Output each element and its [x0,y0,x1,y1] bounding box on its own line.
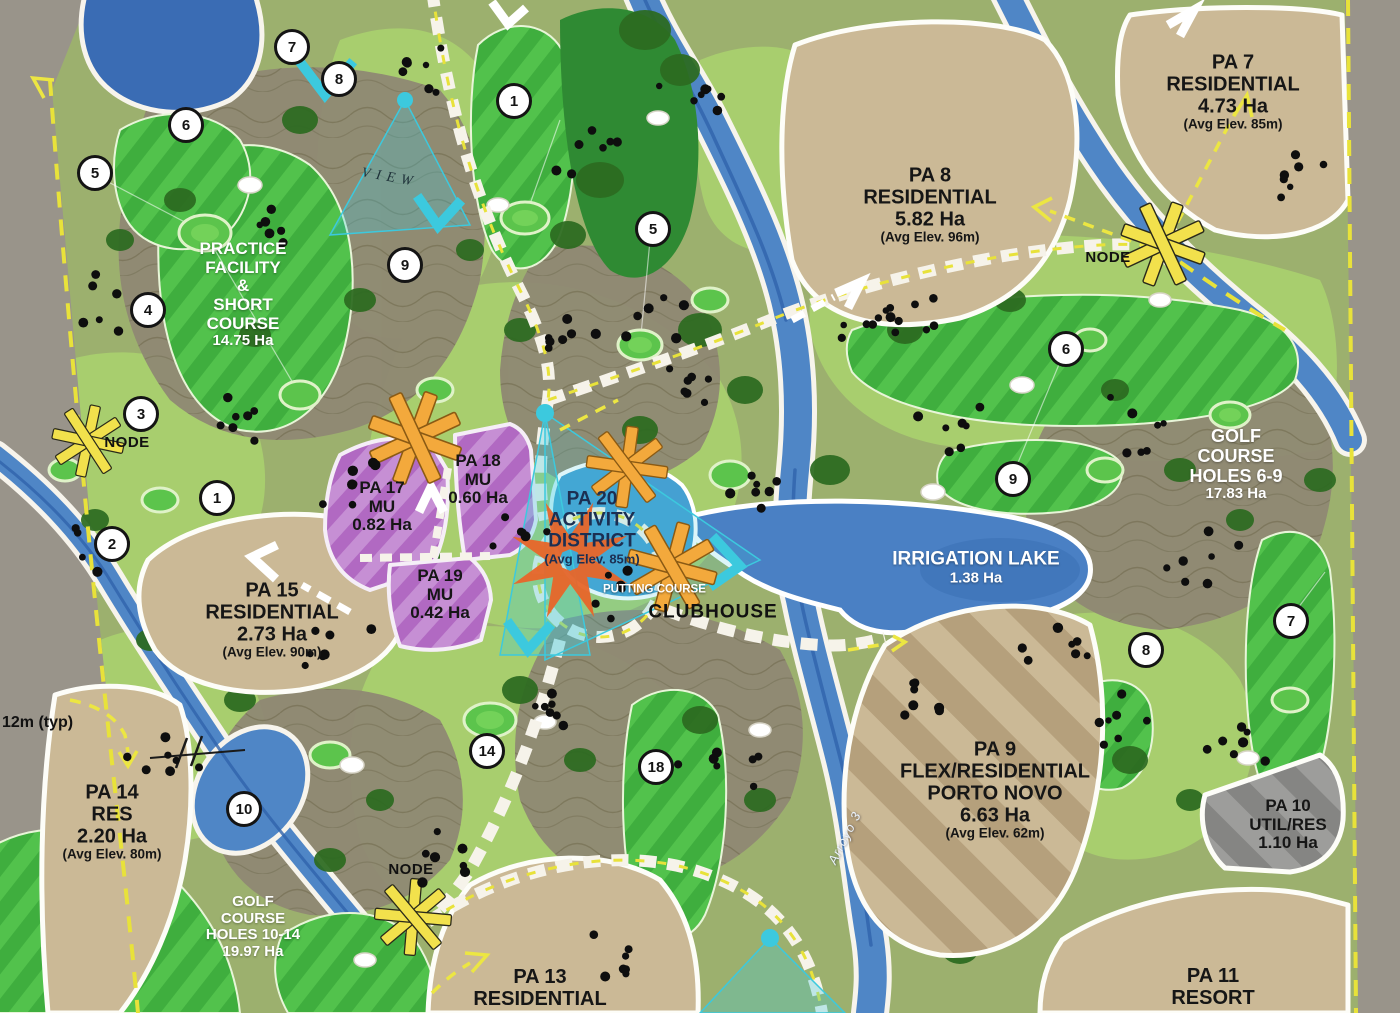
hole-marker: 4 [130,292,166,328]
hole-marker: 8 [321,61,357,97]
pa10-area: 1.10 Ha [1249,834,1326,853]
practice-l3: & [200,277,287,296]
parcel-label-pa13: PA 13 RESIDENTIAL [473,966,606,1010]
pa8-area: 5.82 Ha [863,209,996,231]
pa7-use: RESIDENTIAL [1166,74,1299,96]
label-node-west: NODE [104,435,149,452]
pa9-area: 6.63 Ha [900,805,1090,827]
hole-marker: 7 [274,29,310,65]
lake-name: IRRIGATION LAKE [892,549,1059,570]
pa9-elev: (Avg Elev. 62m) [900,827,1090,842]
hole-marker: 14 [469,733,505,769]
hole-marker: 8 [1128,632,1164,668]
practice-area: 14.75 Ha [200,333,287,350]
pa8-elev: (Avg Elev. 96m) [863,231,996,246]
hole-marker: 1 [496,83,532,119]
pa13-title: PA 13 [473,966,606,988]
h69-l3: HOLES 6-9 [1189,467,1282,487]
master-plan-map: PA 7 RESIDENTIAL 4.73 Ha (Avg Elev. 85m)… [0,0,1400,1013]
practice-l2: FACILITY [200,259,287,278]
pa10-use: UTIL/RES [1249,816,1326,835]
pa19-title: PA 19 [410,567,470,586]
pa10-title: PA 10 [1249,797,1326,816]
pa19-area: 0.42 Ha [410,604,470,623]
putting-l2: COURSE [657,583,706,595]
label-node-northeast: NODE [1085,250,1130,267]
practice-l4: SHORT [200,296,287,315]
hole-marker: 10 [226,791,262,827]
pa7-area: 4.73 Ha [1166,96,1299,118]
pa15-use: RESIDENTIAL [205,602,338,624]
h1014-l2: COURSE [206,911,300,928]
parcel-label-pa8: PA 8 RESIDENTIAL 5.82 Ha (Avg Elev. 96m) [863,165,996,246]
pa18-use: MU [448,471,508,490]
parcel-label-pa15: PA 15 RESIDENTIAL 2.73 Ha (Avg Elev. 90m… [205,580,338,661]
parcel-label-pa9: PA 9 FLEX/RESIDENTIAL PORTO NOVO 6.63 Ha… [900,739,1090,842]
pa20-title: PA 20 [544,490,639,511]
hole-marker: 6 [168,107,204,143]
hole-marker: 6 [1048,331,1084,367]
pa7-elev: (Avg Elev. 85m) [1166,118,1299,133]
label-dimension: 12m (typ) [2,714,73,732]
pa20-elev: (Avg Elev. 85m) [544,552,639,566]
pa9-title: PA 9 [900,739,1090,761]
hole-marker: 7 [1273,603,1309,639]
parcel-label-pa14: PA 14 RES 2.20 Ha (Avg Elev. 80m) [62,782,161,863]
pa18-title: PA 18 [448,452,508,471]
hole-marker: 3 [123,396,159,432]
pa7-title: PA 7 [1166,52,1299,74]
parcel-label-pa20: PA 20 ACTIVITY DISTRICT (Avg Elev. 85m) [544,490,639,567]
label-irrigation-lake: IRRIGATION LAKE 1.38 Ha [892,549,1059,586]
pa14-title: PA 14 [62,782,161,804]
pa8-title: PA 8 [863,165,996,187]
putting-l1: PUTTING [603,583,653,595]
hole-marker: 5 [635,211,671,247]
parcel-label-pa10: PA 10 UTIL/RES 1.10 Ha [1249,797,1326,853]
hole-marker: 9 [995,461,1031,497]
parcel-label-pa11: PA 11 RESORT [1171,965,1254,1009]
parcel-label-pa19: PA 19 MU 0.42 Ha [410,567,470,623]
pa15-area: 2.73 Ha [205,624,338,646]
h69-l1: GOLF [1189,427,1282,447]
pa14-elev: (Avg Elev. 80m) [62,848,161,863]
hole-marker: 18 [638,749,674,785]
hole-marker: 5 [77,155,113,191]
practice-l5: COURSE [200,315,287,334]
label-practice-facility: PRACTICE FACILITY & SHORT COURSE 14.75 H… [200,240,287,350]
pa20-use2: DISTRICT [544,531,639,552]
pa17-use: MU [352,498,412,517]
pa9-use: FLEX/RESIDENTIAL [900,761,1090,783]
label-golf-holes-10-14: GOLF COURSE HOLES 10-14 19.97 Ha [206,894,300,960]
h69-l2: COURSE [1189,447,1282,467]
parcel-label-pa18: PA 18 MU 0.60 Ha [448,452,508,508]
pa11-use: RESORT [1171,987,1254,1009]
parcel-label-pa7: PA 7 RESIDENTIAL 4.73 Ha (Avg Elev. 85m) [1166,52,1299,133]
label-golf-holes-6-9: GOLF COURSE HOLES 6-9 17.83 Ha [1189,427,1282,503]
practice-l1: PRACTICE [200,240,287,259]
lake-area: 1.38 Ha [892,570,1059,587]
pa17-area: 0.82 Ha [352,516,412,535]
pa15-elev: (Avg Elev. 90m) [205,646,338,661]
pa19-use: MU [410,586,470,605]
pa15-title: PA 15 [205,580,338,602]
h69-area: 17.83 Ha [1189,486,1282,503]
hole-marker: 2 [94,526,130,562]
label-clubhouse: CLUBHOUSE [648,603,777,624]
pa11-title: PA 11 [1171,965,1254,987]
pa18-area: 0.60 Ha [448,489,508,508]
pa20-use: ACTIVITY [544,510,639,531]
pa9-use2: PORTO NOVO [900,783,1090,805]
hole-marker: 1 [199,480,235,516]
h1014-l3: HOLES 10-14 [206,927,300,944]
parcel-label-pa17: PA 17 MU 0.82 Ha [352,479,412,535]
hole-marker: 9 [387,247,423,283]
pa14-use: RES [62,804,161,826]
pa13-use: RESIDENTIAL [473,988,606,1010]
h1014-l1: GOLF [206,894,300,911]
pa17-title: PA 17 [352,479,412,498]
h1014-area: 19.97 Ha [206,944,300,961]
pa14-area: 2.20 Ha [62,826,161,848]
label-putting-course: PUTTING COURSE [603,583,706,596]
label-node-south: NODE [388,862,433,879]
pa8-use: RESIDENTIAL [863,187,996,209]
